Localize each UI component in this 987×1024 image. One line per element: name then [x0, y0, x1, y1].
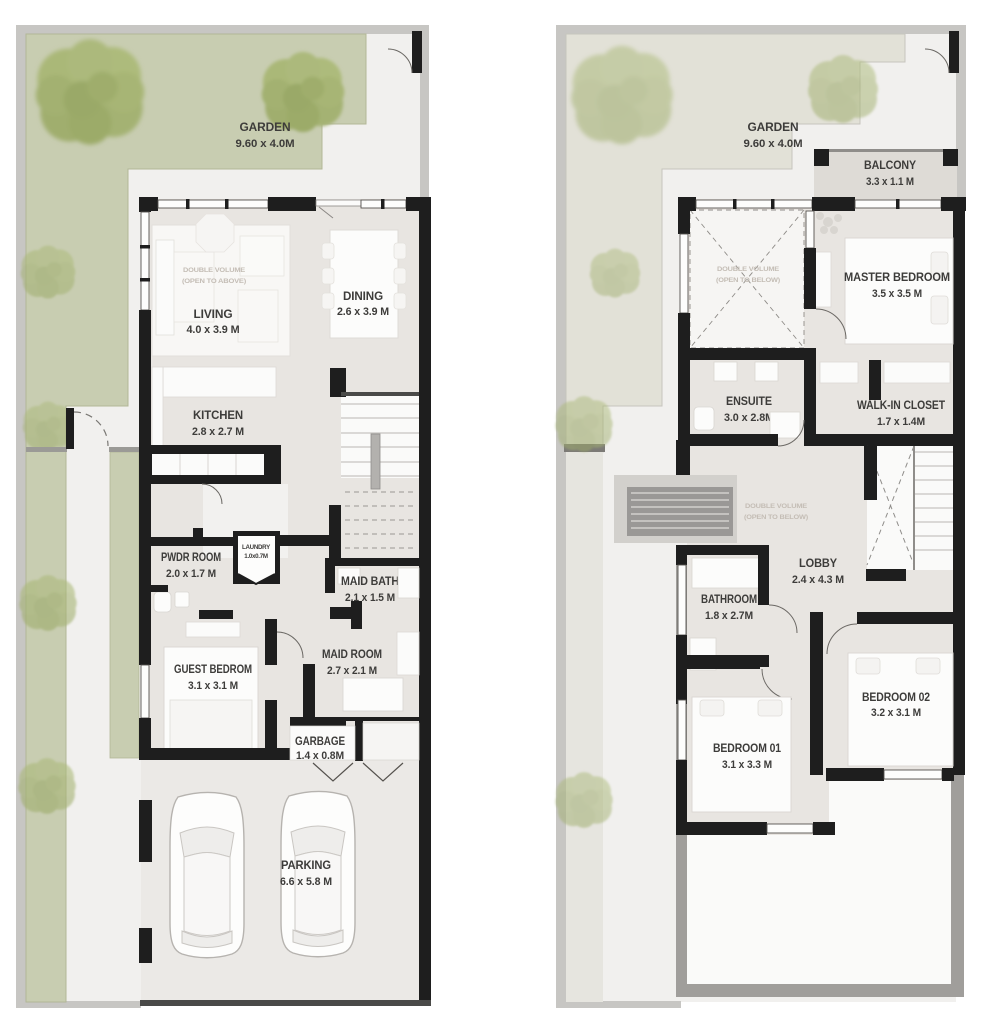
svg-text:PARKING: PARKING [281, 860, 331, 872]
svg-text:DINING: DINING [343, 291, 383, 303]
svg-text:2.8 x 2.7 M: 2.8 x 2.7 M [192, 426, 244, 438]
svg-text:1.8 x 2.7M: 1.8 x 2.7M [705, 610, 753, 622]
svg-text:PWDR ROOM: PWDR ROOM [161, 552, 221, 564]
svg-text:2.6 x 3.9 M: 2.6 x 3.9 M [337, 306, 389, 318]
svg-text:GARDEN: GARDEN [240, 122, 291, 134]
svg-text:9.60 x 4.0M: 9.60 x 4.0M [744, 138, 803, 150]
svg-text:1.0x0.7M: 1.0x0.7M [244, 553, 268, 560]
svg-text:LAUNDRY: LAUNDRY [242, 544, 271, 551]
svg-text:WALK-IN CLOSET: WALK-IN CLOSET [857, 400, 945, 412]
svg-text:6.6 x 5.8 M: 6.6 x 5.8 M [280, 876, 332, 888]
svg-text:BEDROOM 02: BEDROOM 02 [862, 692, 930, 704]
svg-text:GUEST BEDROM: GUEST BEDROM [174, 664, 252, 676]
svg-text:4.0 x 3.9 M: 4.0 x 3.9 M [187, 324, 240, 336]
svg-text:DOUBLE VOLUME: DOUBLE VOLUME [745, 503, 808, 510]
svg-text:2.4 x 4.3 M: 2.4 x 4.3 M [792, 574, 844, 586]
svg-text:MAID BATH: MAID BATH [341, 576, 399, 588]
svg-text:DOUBLE VOLUME: DOUBLE VOLUME [717, 266, 780, 273]
svg-text:2.7 x 2.1 M: 2.7 x 2.1 M [327, 665, 377, 677]
svg-text:9.60 x 4.0M: 9.60 x 4.0M [236, 138, 295, 150]
svg-text:3.5 x 3.5 M: 3.5 x 3.5 M [872, 288, 922, 300]
svg-text:3.0 x 2.8M: 3.0 x 2.8M [724, 412, 774, 424]
svg-text:(OPEN TO BELOW): (OPEN TO BELOW) [716, 277, 780, 284]
svg-text:LIVING: LIVING [194, 309, 233, 321]
svg-text:1.4 x 0.8M: 1.4 x 0.8M [296, 750, 344, 762]
svg-text:DOUBLE VOLUME: DOUBLE VOLUME [183, 267, 246, 274]
svg-text:2.0 x 1.7 M: 2.0 x 1.7 M [166, 568, 216, 580]
svg-text:KITCHEN: KITCHEN [193, 410, 243, 422]
svg-text:GARBAGE: GARBAGE [295, 736, 345, 748]
svg-text:BALCONY: BALCONY [864, 160, 916, 172]
svg-text:MAID ROOM: MAID ROOM [322, 649, 382, 661]
svg-text:3.1 x 3.1 M: 3.1 x 3.1 M [188, 680, 238, 692]
svg-text:GARDEN: GARDEN [748, 122, 799, 134]
svg-text:3.3 x 1.1 M: 3.3 x 1.1 M [866, 176, 914, 188]
svg-text:ENSUITE: ENSUITE [726, 396, 772, 408]
svg-text:3.2 x 3.1 M: 3.2 x 3.1 M [871, 707, 921, 719]
svg-text:MASTER BEDROOM: MASTER BEDROOM [844, 272, 950, 284]
svg-text:3.1 x 3.3 M: 3.1 x 3.3 M [722, 759, 772, 771]
svg-text:1.7 x 1.4M: 1.7 x 1.4M [877, 416, 925, 428]
svg-text:(OPEN TO ABOVE): (OPEN TO ABOVE) [182, 278, 246, 285]
svg-text:LOBBY: LOBBY [799, 558, 837, 570]
svg-text:BEDROOM 01: BEDROOM 01 [713, 743, 782, 755]
svg-text:BATHROOM: BATHROOM [701, 594, 757, 606]
svg-text:(OPEN TO BELOW): (OPEN TO BELOW) [744, 514, 808, 521]
